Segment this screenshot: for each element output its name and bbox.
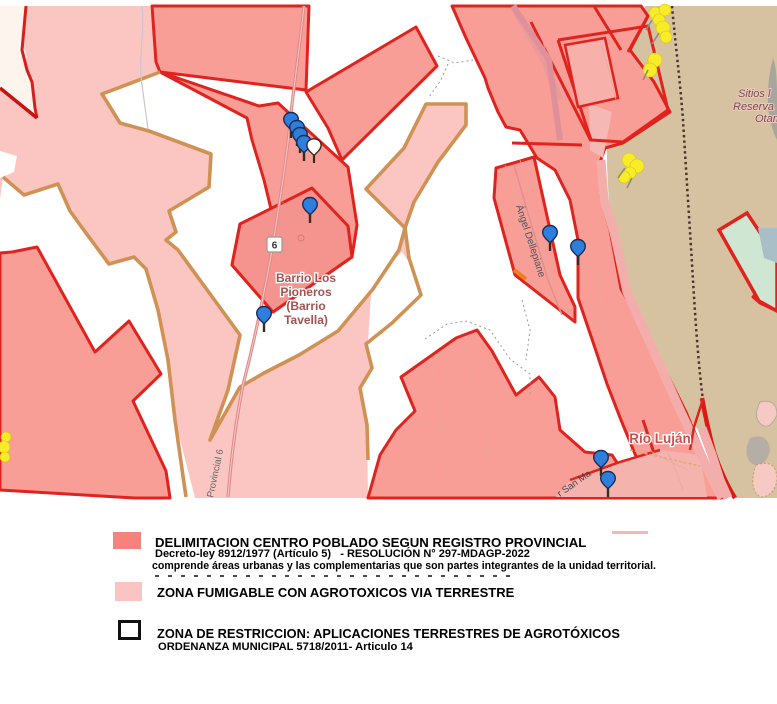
svg-text:Reserva: Reserva xyxy=(733,101,774,113)
svg-text:Pioneros: Pioneros xyxy=(280,285,332,299)
svg-text:6: 6 xyxy=(272,241,278,252)
svg-text:Otam: Otam xyxy=(755,113,777,125)
svg-text:Río Luján: Río Luján xyxy=(629,431,691,446)
svg-text:(Barrio: (Barrio xyxy=(286,299,325,313)
svg-text:Tavella): Tavella) xyxy=(284,313,328,327)
svg-text:Sitios l: Sitios l xyxy=(738,88,771,100)
svg-text:Barrio Los: Barrio Los xyxy=(276,271,336,285)
